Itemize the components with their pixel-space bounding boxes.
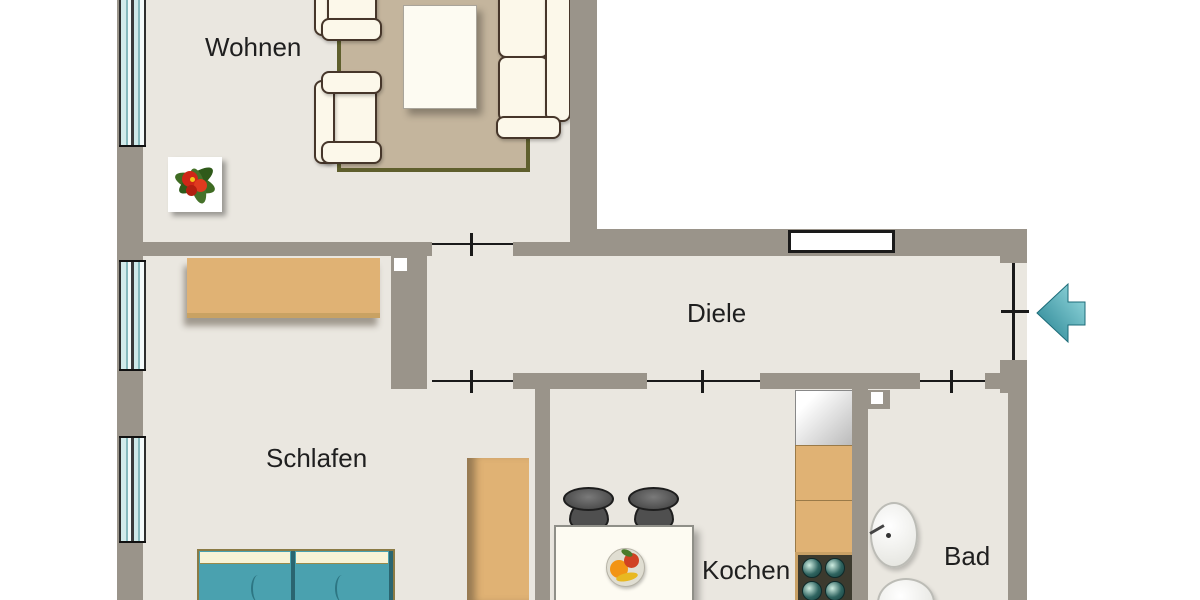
bed-pillow-curve	[335, 575, 349, 600]
plant	[168, 157, 222, 212]
fruit-bowl	[606, 548, 645, 587]
armchair-armrest-top	[321, 71, 382, 94]
wall-diele-left	[391, 256, 427, 389]
sofa-cushion-2	[498, 56, 549, 122]
stool	[563, 487, 614, 511]
wall-wohnen-right	[570, 0, 597, 256]
bed-headboard-left	[200, 552, 290, 564]
stove-burner	[825, 581, 845, 600]
door-tick	[470, 233, 473, 256]
armchair-top-armrest	[321, 18, 382, 41]
stove-burner	[802, 558, 822, 578]
sofa-cushion-1	[498, 0, 549, 58]
room-label-bad: Bad	[944, 541, 990, 572]
room-label-wohnen: Wohnen	[205, 32, 301, 63]
wall-niche	[788, 230, 895, 253]
bed-headboard-right	[296, 552, 388, 564]
door-tick	[470, 370, 473, 393]
window	[119, 436, 146, 543]
sofa-back	[545, 0, 571, 122]
kitchen-fridge	[795, 390, 854, 447]
wall-wohnen-bottom	[513, 242, 570, 256]
wall-entrance-corner-lower	[1000, 360, 1027, 393]
wall-exterior-right	[1008, 393, 1027, 600]
sink-drain	[886, 533, 891, 538]
armchair-armrest-bottom	[321, 141, 382, 164]
sofa-armrest	[496, 116, 561, 139]
wall-diele-bottom	[513, 373, 647, 389]
floor-plan: Wohnen Diele Schlafen Kochen Bad	[0, 0, 1200, 600]
wardrobe	[467, 458, 529, 600]
room-label-schlafen: Schlafen	[266, 443, 367, 474]
coffee-table	[403, 5, 477, 109]
room-label-diele: Diele	[687, 298, 746, 329]
door-tick	[701, 370, 704, 393]
window	[119, 260, 146, 371]
bed-pillow-curve	[251, 575, 265, 600]
room-label-kochen: Kochen	[702, 555, 790, 586]
kitchen-counter	[795, 500, 854, 554]
stool	[628, 487, 679, 511]
plant-flower	[186, 185, 197, 196]
wall-diele-bottom	[760, 373, 920, 389]
door-tick	[1001, 310, 1029, 313]
door-tick	[950, 370, 953, 393]
bed	[197, 549, 395, 600]
wall-kochen-bad	[852, 389, 868, 600]
entrance-arrow-icon	[1034, 280, 1088, 346]
kitchen-counter	[795, 445, 854, 502]
wall-schlafen-kochen	[535, 389, 550, 600]
bathroom-sink	[870, 502, 918, 568]
shaft-notch	[394, 258, 407, 271]
wall-wohnen-bottom	[117, 242, 432, 256]
wall-entrance-corner-upper	[1000, 229, 1027, 263]
plant-flower-center	[190, 177, 195, 182]
stove-burner	[825, 558, 845, 578]
window	[119, 0, 146, 147]
sideboard	[187, 258, 380, 318]
shaft-notch	[871, 392, 883, 404]
stove-burner	[802, 581, 822, 600]
